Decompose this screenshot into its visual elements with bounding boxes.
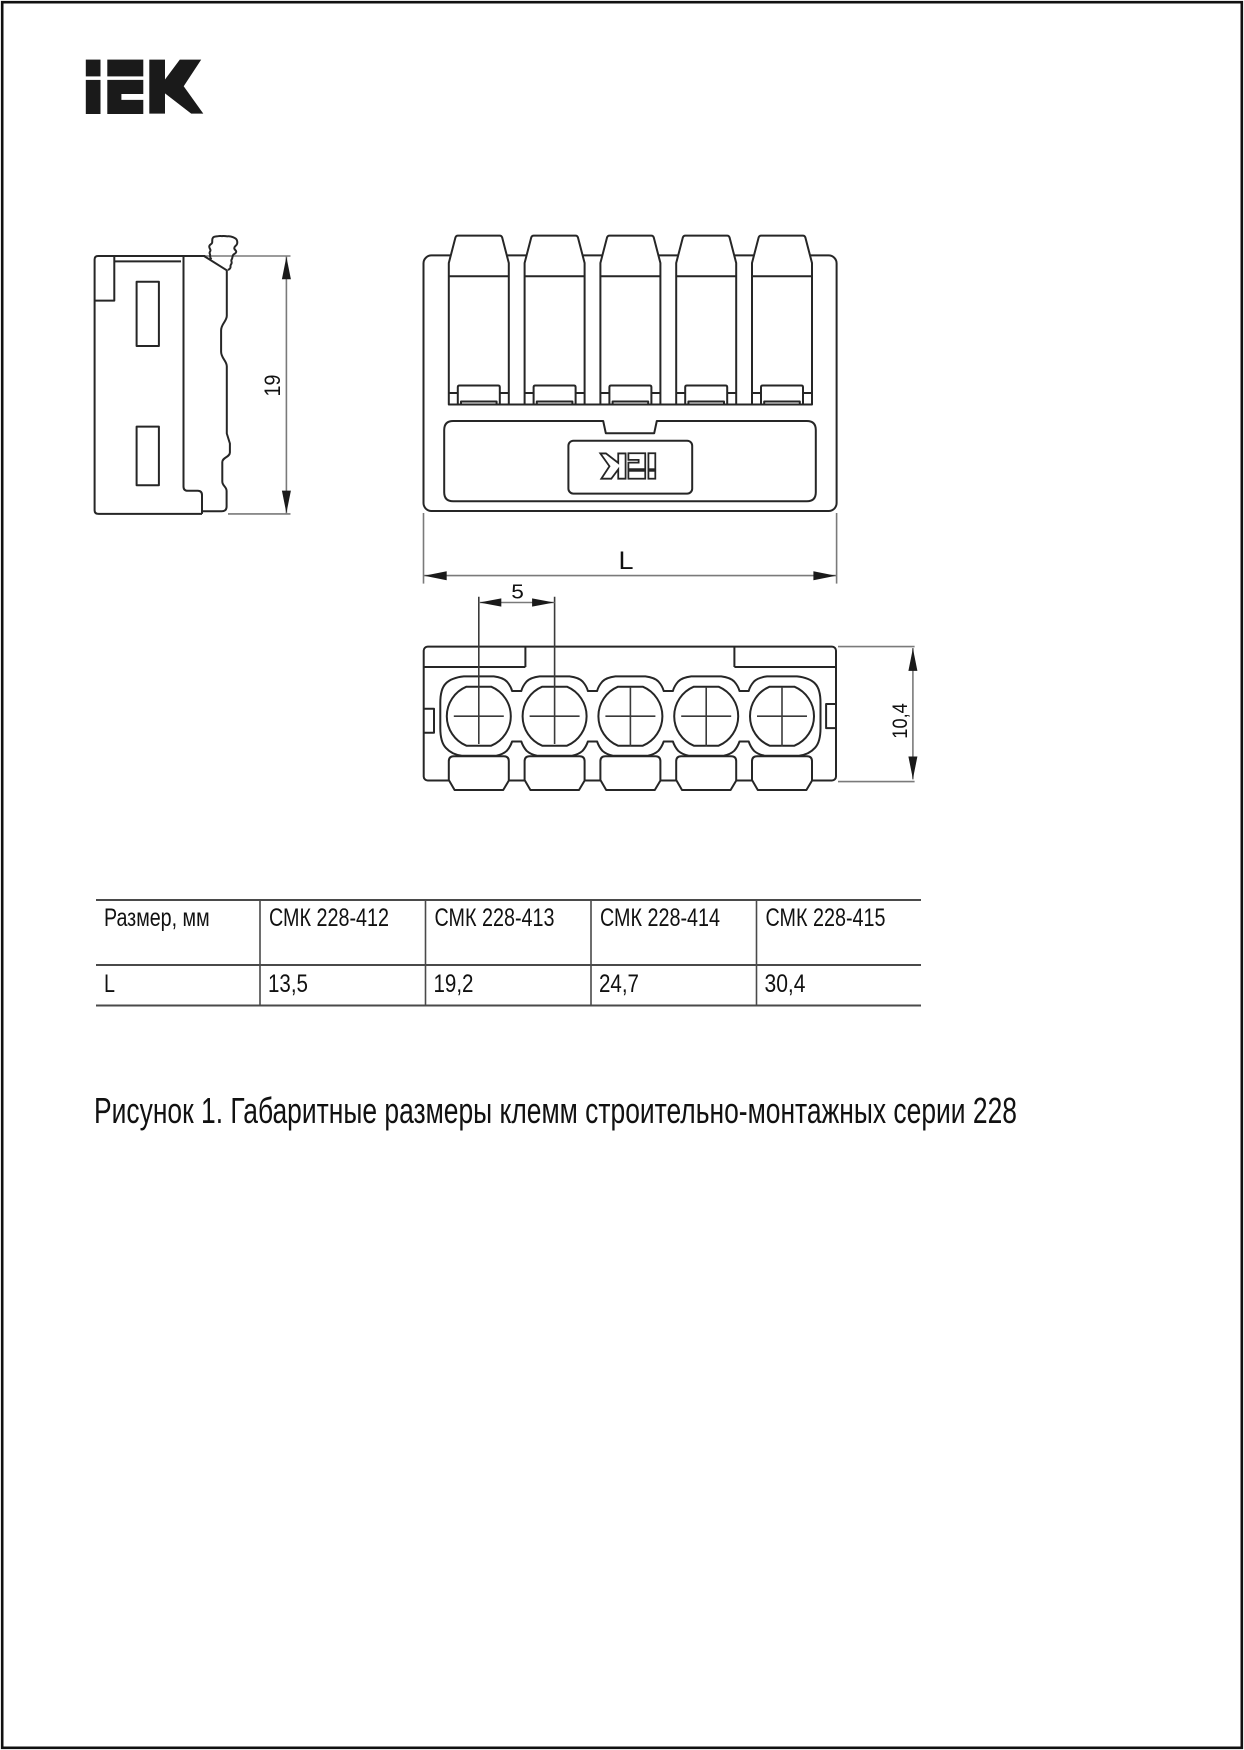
svg-text:СМК 228-413: СМК 228-413	[435, 904, 555, 932]
svg-text:Рисунок 1. Габаритные размеры: Рисунок 1. Габаритные размеры клемм стро…	[94, 1090, 1017, 1131]
svg-text:СМК 228-412: СМК 228-412	[269, 904, 389, 932]
svg-text:L: L	[104, 970, 115, 998]
svg-text:19,2: 19,2	[434, 970, 474, 998]
svg-text:10,4: 10,4	[889, 703, 912, 739]
svg-text:30,4: 30,4	[765, 970, 806, 998]
svg-text:5: 5	[511, 582, 524, 604]
svg-text:13,5: 13,5	[268, 970, 308, 998]
svg-text:19: 19	[260, 375, 285, 397]
svg-text:СМК 228-414: СМК 228-414	[600, 904, 720, 932]
svg-text:L: L	[619, 547, 634, 575]
svg-text:Размер, мм: Размер, мм	[104, 904, 210, 932]
svg-text:24,7: 24,7	[599, 970, 639, 998]
svg-text:СМК 228-415: СМК 228-415	[766, 904, 886, 932]
